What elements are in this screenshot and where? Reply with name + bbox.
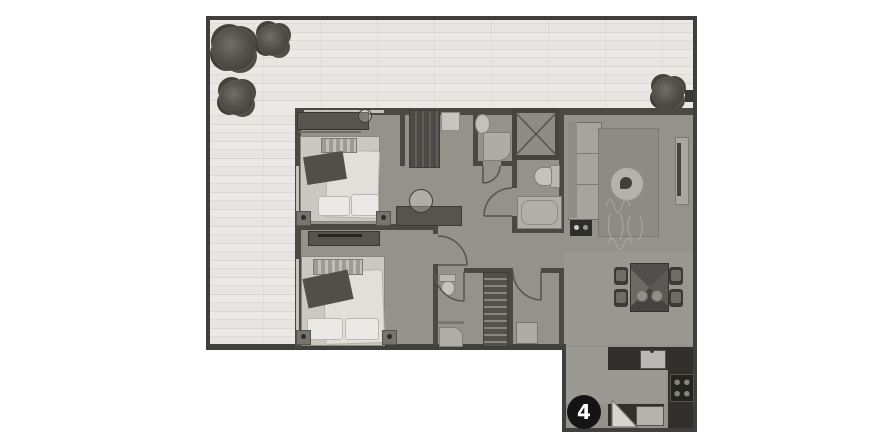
door-arc-laundry — [513, 271, 541, 300]
door-arc-bath1 — [484, 188, 512, 216]
plan-linework — [206, 16, 697, 432]
rug-pattern — [608, 214, 642, 240]
shaft-cross-icon — [516, 113, 556, 155]
rug-pattern — [606, 200, 630, 213]
door-arc-wc — [483, 166, 500, 183]
floor-plan: 4 — [206, 16, 697, 432]
door-arc-bedroom2 — [438, 236, 467, 265]
kitchen-door-leaf — [612, 400, 637, 427]
door-arc-bath2 — [435, 272, 464, 301]
floor-plan-canvas: 4 — [0, 0, 890, 440]
